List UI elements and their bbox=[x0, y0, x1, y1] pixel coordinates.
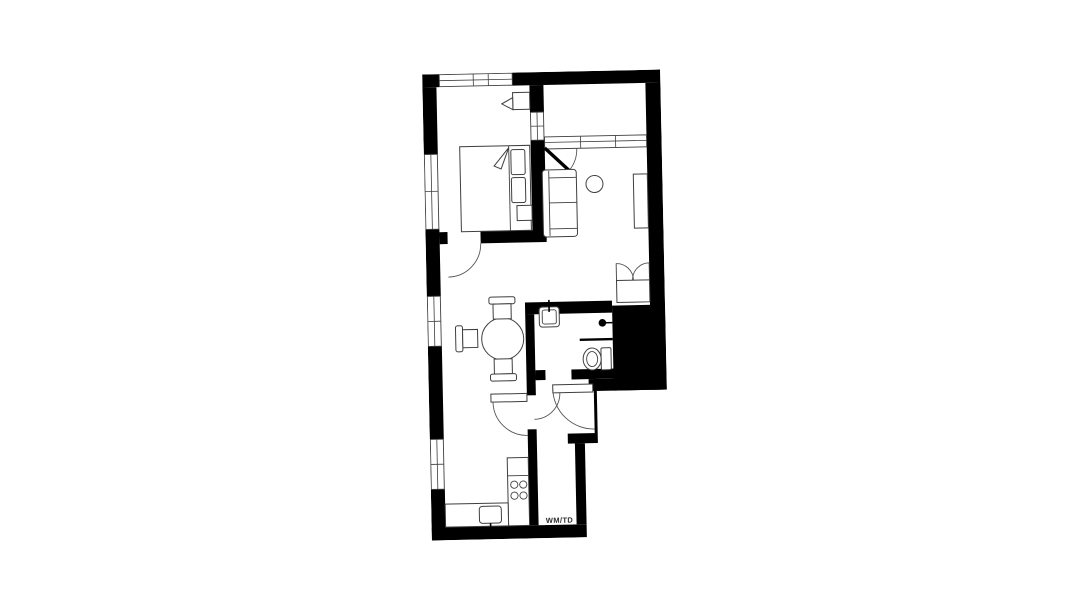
wall-closet-east bbox=[575, 443, 587, 524]
wall-bath-west-upper bbox=[525, 314, 536, 395]
wardrobe-door-right-swing bbox=[632, 263, 649, 280]
balcony-door-leaf bbox=[545, 147, 569, 170]
chair-left-seat bbox=[463, 329, 478, 347]
chair-left-backrest bbox=[455, 326, 463, 352]
entry-door-leaf bbox=[553, 384, 593, 393]
wall-bedroom-south-east bbox=[480, 230, 546, 243]
wall-bath-north bbox=[525, 301, 612, 315]
bedroom-top-window bbox=[439, 73, 512, 87]
kitchen-door-leaf bbox=[491, 393, 527, 402]
coffee-table bbox=[586, 175, 603, 192]
wall-bath-south-stub bbox=[535, 370, 545, 380]
nightstand-top bbox=[513, 92, 530, 109]
kitchen-sink bbox=[479, 506, 501, 523]
shower-head bbox=[599, 319, 607, 327]
wall-entry-south bbox=[589, 377, 667, 391]
floor-plan: WM/TD bbox=[422, 70, 670, 541]
wall-left-segment-1 bbox=[422, 87, 437, 154]
wall-top-right-segment bbox=[512, 70, 660, 86]
kitchen-door-swing bbox=[493, 401, 528, 436]
chair-top-backrest bbox=[489, 297, 515, 305]
pillow-2 bbox=[511, 177, 526, 202]
corner-lamp bbox=[502, 98, 513, 110]
kitchen-left-window bbox=[430, 439, 444, 489]
living-room-furniture bbox=[542, 168, 650, 304]
kitchen-counter-vertical bbox=[507, 457, 529, 525]
wall-bedroom-east-upper bbox=[529, 85, 544, 112]
utility-closet-label: WM/TD bbox=[546, 515, 574, 525]
sofa bbox=[542, 169, 577, 237]
wardrobe-body bbox=[617, 280, 650, 303]
dining-left-window bbox=[427, 296, 441, 346]
page-canvas: { "plan": { "utility_label": "WM/TD", "c… bbox=[0, 0, 1092, 614]
chair-bottom-backrest bbox=[490, 374, 516, 382]
wardrobe-door-left-swing bbox=[616, 263, 633, 280]
wall-bedroom-south-west bbox=[439, 232, 447, 244]
sofa-arm-top-line bbox=[549, 177, 576, 178]
balcony-glazing-window bbox=[544, 135, 646, 149]
entry-door-swing bbox=[553, 388, 595, 430]
chair-top-seat bbox=[493, 304, 511, 319]
nightstand-bottom bbox=[517, 205, 532, 220]
wall-top-left-segment bbox=[422, 74, 439, 87]
dining-furniture bbox=[455, 296, 525, 381]
floor-plan-drawing: WM/TD bbox=[422, 70, 670, 541]
kitchen-furniture bbox=[444, 457, 530, 532]
shower-partition bbox=[580, 339, 613, 340]
wall-entry-step bbox=[568, 433, 598, 444]
bedroom-left-window bbox=[424, 154, 439, 229]
wall-left-segment-3 bbox=[428, 346, 444, 439]
sideboard bbox=[633, 174, 648, 228]
bedroom-door-swing bbox=[448, 243, 482, 277]
bedroom-interior-window bbox=[530, 112, 544, 140]
windows bbox=[423, 70, 654, 489]
sofa-arm-bottom-line bbox=[550, 228, 577, 229]
pillow-1 bbox=[511, 149, 526, 174]
wall-left-segment-2 bbox=[425, 229, 440, 296]
sofa-cushion-divider bbox=[549, 202, 576, 203]
toilet-tank bbox=[601, 348, 611, 370]
bedroom-furniture bbox=[459, 92, 533, 231]
wall-entry-thin bbox=[594, 391, 598, 433]
dining-table bbox=[481, 317, 524, 360]
balcony-door-swing bbox=[569, 148, 577, 170]
chair-bottom-seat bbox=[494, 359, 512, 374]
